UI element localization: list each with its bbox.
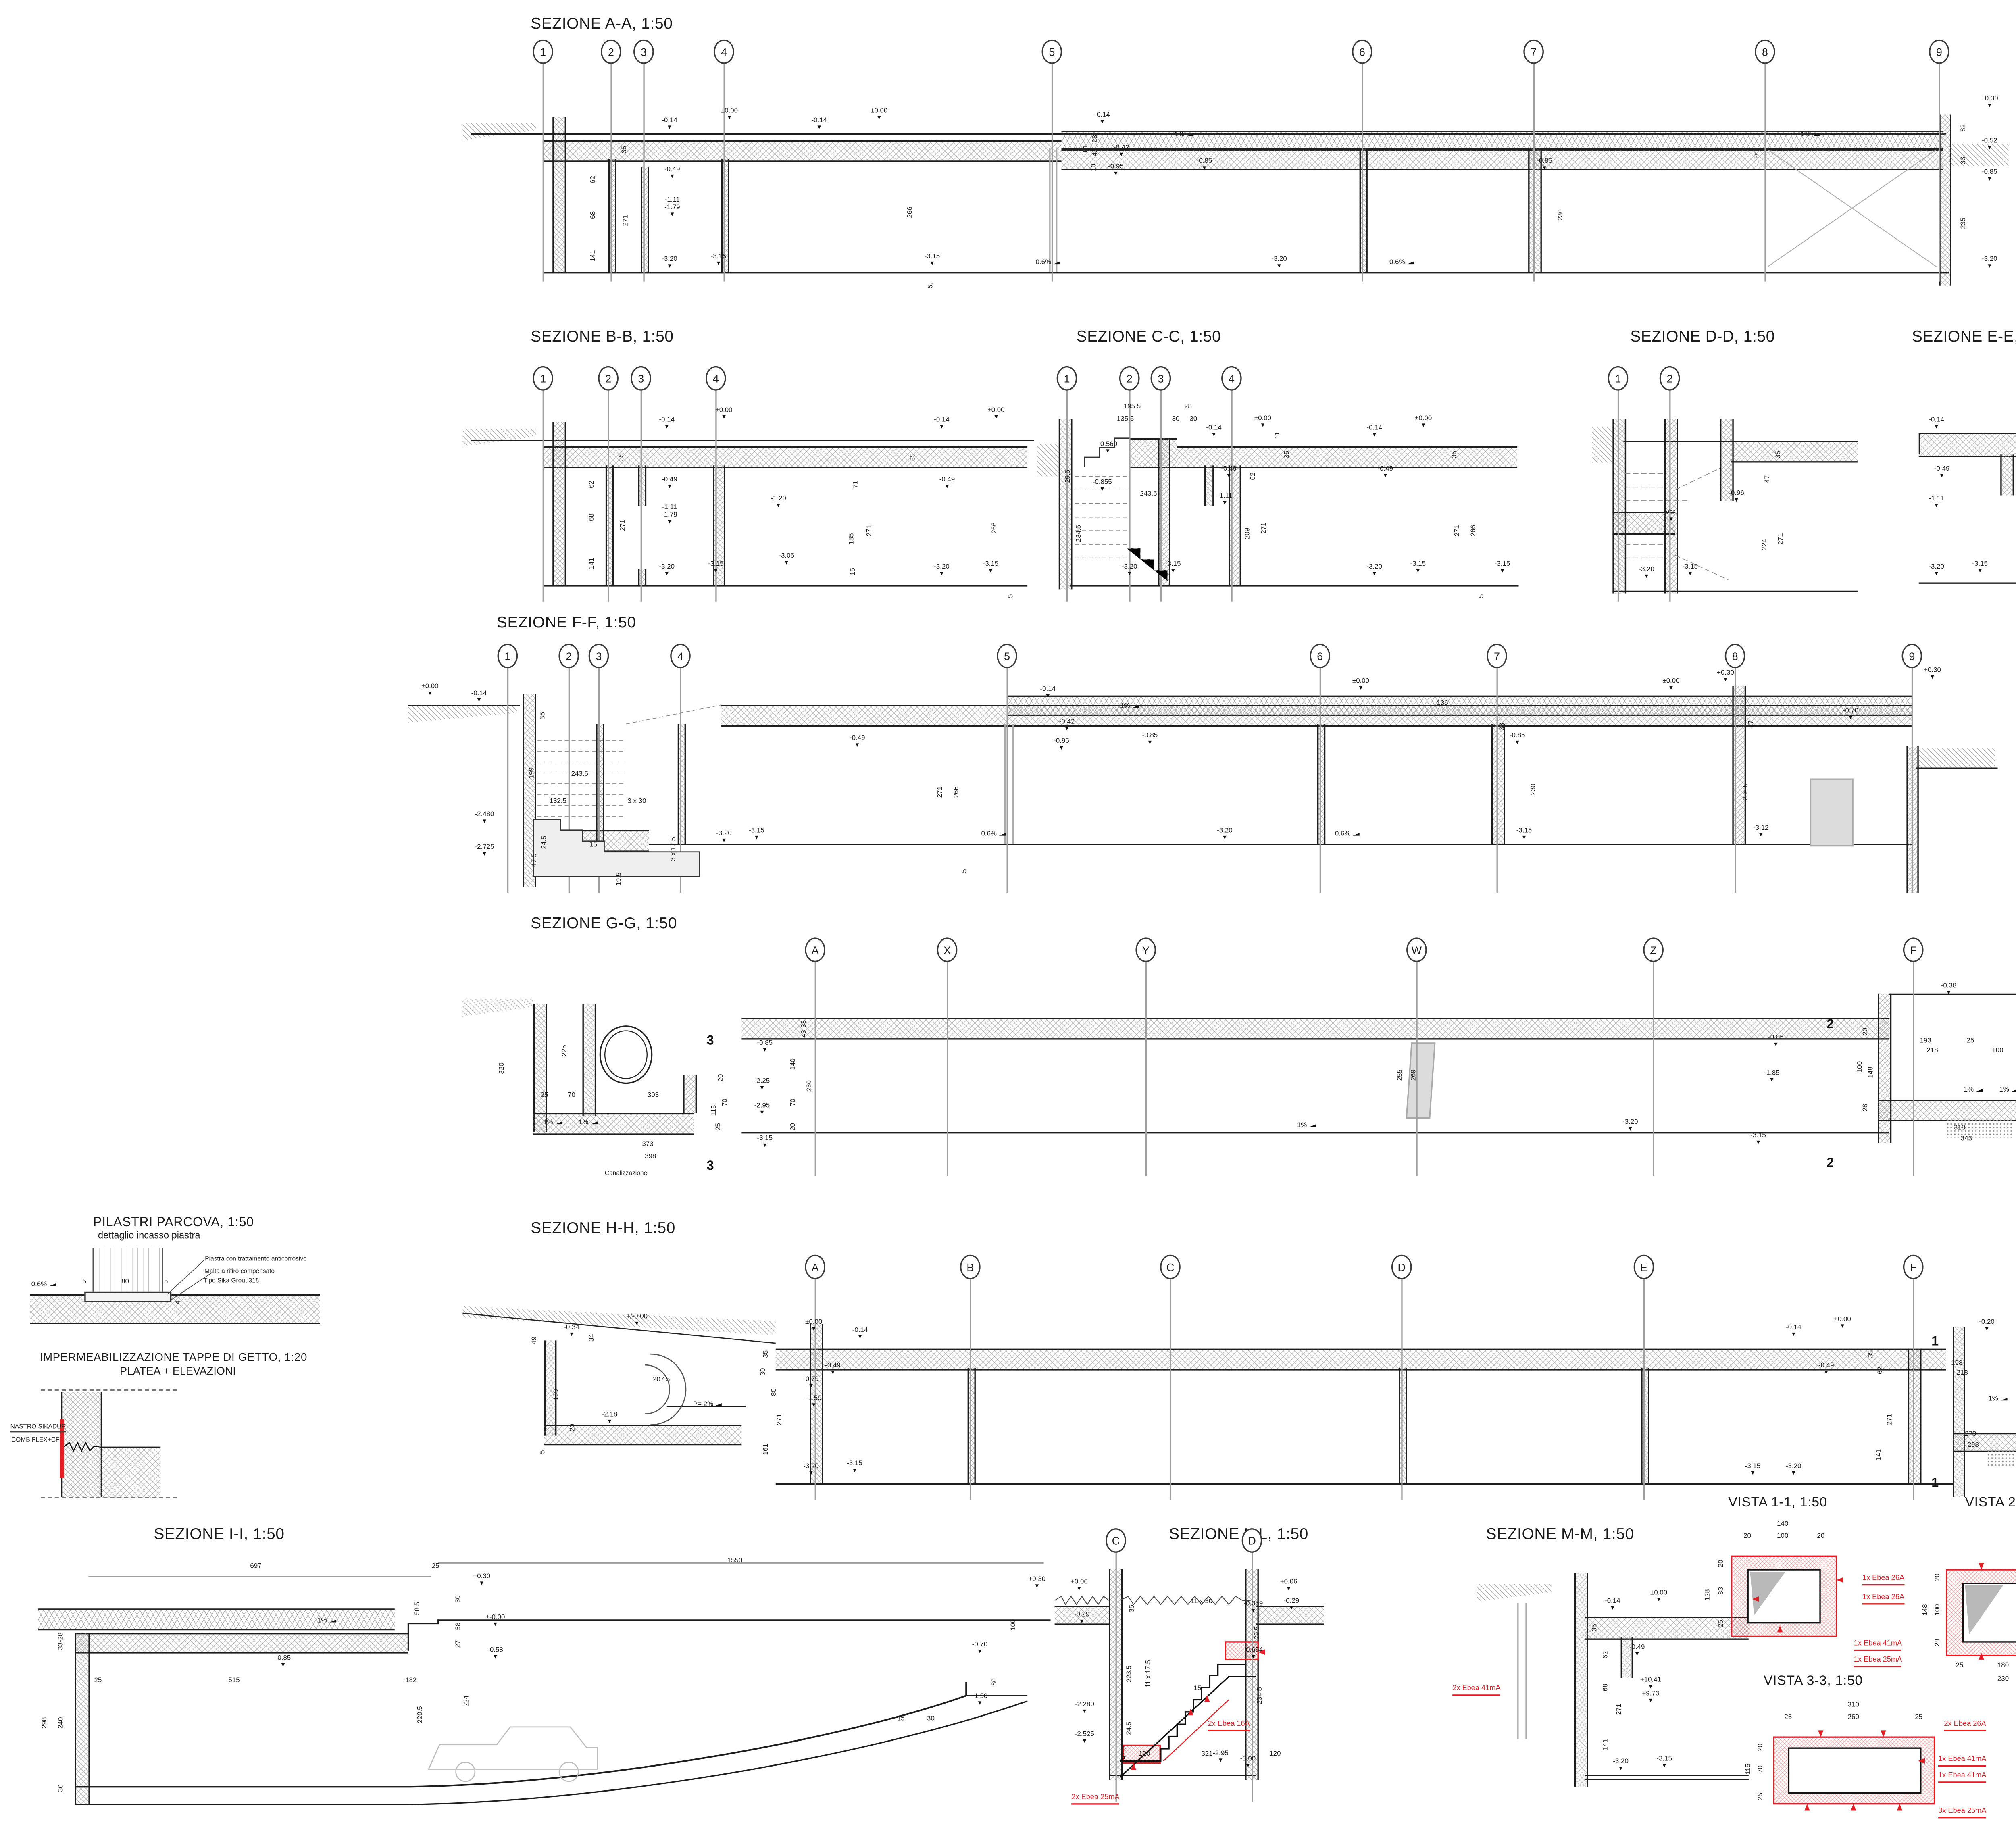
grid-bubble-B: B (960, 1255, 981, 1279)
annotation: -3.15 (1745, 1464, 1760, 1478)
annotation: 2x Ebea 25mA (1071, 1794, 1119, 1804)
grid-bubble-A: A (805, 937, 825, 962)
annotation: 136 (1437, 701, 1448, 709)
annotation: 5 (83, 1279, 86, 1287)
annotation: 35 (1592, 1624, 1600, 1631)
annotation: -3.05 (779, 554, 794, 568)
annotation: 28 (1863, 1104, 1871, 1112)
annotation: 19.5 (616, 873, 624, 886)
stairs-outline (408, 615, 2016, 912)
annotation: 100 (1858, 1061, 1865, 1073)
annotation: 148 (1923, 1604, 1931, 1616)
annotation: 1x Ebea 25mA (1854, 1656, 1902, 1667)
red-arrow-icon (1881, 1730, 1886, 1737)
annotation: 271 (777, 1414, 785, 1425)
annotation: 25 (1758, 1793, 1766, 1800)
annotation: ±0.00 (421, 684, 438, 698)
annotation: 115 (712, 1105, 720, 1116)
grid-bubble-1: 1 (533, 40, 553, 64)
annotation: -0.85 (1197, 159, 1212, 173)
pipe-circle (463, 912, 2016, 1191)
annotation: 62 (1603, 1651, 1611, 1659)
annotation: 35 (1130, 1605, 1137, 1612)
grid-bubble-Z: Z (1643, 937, 1664, 962)
annotation: ±0.00 (987, 408, 1004, 422)
annotation: 180 (1997, 1663, 2009, 1671)
annotation: -3.20 (716, 831, 731, 845)
annotation: 35 (1452, 451, 1460, 458)
red-arrow-icon (1188, 1708, 1193, 1715)
annotation: 30 (1172, 417, 1180, 424)
annotation: NASTRO SIKADUR (10, 1423, 66, 1432)
annotation: -0.49 (664, 167, 680, 181)
annotation: 47.5 (532, 854, 540, 867)
section-linework (27, 1521, 1055, 1823)
annotation: 35 (619, 454, 627, 461)
annotation: +0.30 (473, 1574, 490, 1588)
annotation: 71 (854, 481, 861, 488)
annotation: -3.15 (847, 1461, 862, 1475)
section-c-c: SEZIONE C-C, 1:50 1234 195.528 (1048, 337, 1524, 610)
grid-bubble-7: 7 (1523, 40, 1544, 64)
annotation: 3 (707, 1160, 714, 1175)
annotation: -3.00 (1240, 1756, 1256, 1771)
annotation: 343 (1961, 1137, 1972, 1144)
annotation: -0.85 (1510, 733, 1525, 747)
grid-line (608, 389, 609, 602)
annotation: 2x Ebea 26A (1944, 1720, 1986, 1731)
annotation: 198 (1951, 1361, 1962, 1369)
annotation: -0.49 (939, 477, 955, 492)
grid-bubble-8: 8 (1755, 40, 1775, 64)
annotation: 27 (456, 1640, 464, 1648)
annotation: -2.95 (754, 1103, 770, 1117)
annotation: 230 (1997, 1677, 2009, 1684)
annotation: 49 (532, 1337, 540, 1344)
grid-bubble-E: E (1634, 1255, 1654, 1279)
grid-bubble-D: D (1391, 1255, 1412, 1279)
annotation: -3.15 (983, 562, 998, 576)
annotation: 1x Ebea 26A (1862, 1594, 1904, 1604)
annotation: 35 (1285, 451, 1292, 458)
annotation: -3.20 (662, 257, 677, 271)
annotation: 24.5 (542, 836, 550, 849)
grid-bubble-5: 5 (997, 644, 1017, 668)
annotation: 1x Ebea 41mA (1938, 1756, 1986, 1766)
annotation: 25 (716, 1123, 724, 1131)
annotation: -0.359 (1243, 1602, 1263, 1616)
annotation: -3.15 (925, 254, 940, 268)
annotation: ±0.00 (1254, 416, 1271, 430)
annotation: -0.14 (1929, 417, 1944, 431)
annotation: -3.15 (1750, 1133, 1766, 1148)
annotation: -3.15 (749, 829, 764, 843)
annotation: 260 (1848, 1715, 1859, 1723)
annotation: 321 (1202, 1752, 1213, 1759)
annotation: 62 (589, 481, 597, 488)
annotation: 195.5 (1124, 404, 1141, 412)
grid-bubble-6: 6 (1310, 644, 1330, 668)
annotation: -3.20 (1217, 829, 1232, 843)
annotation: -3.20 (1639, 567, 1654, 581)
annotation: ±0.00 (715, 408, 732, 422)
annotation: -1.59 (806, 1396, 821, 1410)
annotation: 35 (1868, 1350, 1876, 1358)
annotation: 135.5 (1117, 417, 1134, 424)
annotation: 47 (1765, 475, 1773, 483)
grid-bubble-9: 9 (1929, 40, 1949, 64)
annotation: +0.06 (1070, 1580, 1088, 1594)
grid-bubble-4: 4 (1221, 366, 1242, 391)
annotation: 1 (1931, 1477, 1939, 1492)
annotation: +0.30 (1924, 668, 1941, 682)
annotation: 298 (42, 1717, 50, 1729)
annotation: -0.49 (1934, 467, 1949, 481)
annotation: 5 (164, 1279, 168, 1287)
annotation: 25 (1956, 1663, 1964, 1671)
annotation: 62 (1878, 1367, 1886, 1374)
annotation: 1% (1988, 1396, 2007, 1404)
annotation: -0.14 (1605, 1599, 1620, 1613)
annotation: 148 (1868, 1067, 1876, 1078)
annotation: -2.25 (754, 1079, 770, 1093)
annotation: -0.38 (1941, 983, 1956, 998)
annotation: -0.95 (1054, 739, 1069, 753)
annotation: -0.96 (1729, 491, 1744, 505)
annotation: 3 (707, 1035, 714, 1050)
annotation: 26 (1754, 151, 1762, 159)
annotation: 27 (1749, 720, 1756, 728)
annotation: -3.20 (1613, 1759, 1628, 1773)
annotation: 100 (1011, 1619, 1019, 1631)
annotation: 10 (1091, 164, 1099, 171)
annotation: -0.14 (852, 1328, 868, 1342)
annotation: 30 (1189, 417, 1197, 424)
annotation: 5 (962, 869, 970, 873)
annotation: 1x Ebea 41mA (1854, 1640, 1902, 1650)
red-arrow-icon (1897, 1804, 1903, 1811)
grid-bubble-W: W (1406, 937, 1427, 962)
annotation: 11 x 17.5 (1146, 1660, 1154, 1687)
annotation: -0.49 (1629, 1645, 1645, 1659)
annotation: 58 (456, 1623, 464, 1630)
annotation: 303 (648, 1093, 659, 1101)
annotation: ±0.00 (871, 108, 887, 123)
red-arrow-icon (1979, 1653, 1984, 1660)
annotation: 20 (1817, 1534, 1824, 1542)
annotation: 1% (1297, 1123, 1316, 1131)
annotation: 225 (562, 1045, 570, 1056)
annotation: 35 (1776, 451, 1784, 458)
annotation: 25 (94, 1678, 102, 1686)
annotation: 80 (772, 1388, 779, 1396)
annotation: 266 (1471, 525, 1479, 536)
annotation: 20 (1743, 1534, 1751, 1542)
red-arrow-icon (1979, 1563, 1984, 1570)
annotation: -3.15 (1165, 562, 1181, 576)
annotation: -1.50 (972, 1694, 987, 1708)
red-arrow-icon (1851, 1804, 1856, 1811)
annotation: 68 (1603, 1684, 1611, 1692)
annotation: 20 (571, 1424, 578, 1431)
annotation: 68 (591, 211, 598, 219)
annotation: 1550 (727, 1558, 743, 1566)
section-d-d: SEZIONE D-D, 1:50 12 3547-0.96Var.224271… (1606, 337, 1871, 610)
annotation: 15 (589, 843, 597, 850)
annotation: 70 (1758, 1765, 1766, 1773)
annotation: 235 (1961, 217, 1969, 229)
annotation: 20 (1935, 1573, 1943, 1581)
car-silhouette (429, 1727, 598, 1781)
annotation: +0.30 (1717, 671, 1734, 685)
section-a-a: SEZIONE A-A, 1:50 123456789 -0.14±0.00 (463, 14, 2016, 310)
annotation: 20 (791, 1123, 798, 1131)
section-linework (408, 615, 2016, 912)
grid-bubble-1: 1 (1057, 366, 1077, 391)
annotation: -3.15 (1495, 562, 1510, 576)
annotation: 11 (1275, 432, 1283, 439)
annotation: 271 (1888, 1414, 1895, 1425)
annotation: -0.14 (812, 118, 827, 132)
annotation: ±0.00 (805, 1320, 822, 1334)
annotation: -0.855 (1093, 480, 1112, 494)
annotation: 141 (591, 250, 598, 261)
red-arrow-icon (1131, 1763, 1137, 1770)
red-arrow-icon (1258, 1650, 1265, 1655)
annotation: 271 (1617, 1704, 1624, 1715)
annotation: -1.79 (662, 513, 677, 527)
annotation: -0.85 (1142, 733, 1158, 747)
annotation: 62 (591, 176, 598, 183)
grid-bubble-7: 7 (1487, 644, 1507, 668)
annotation: 243.5 (1140, 492, 1157, 499)
annotation: -3.20 (934, 565, 949, 579)
annotation: -0.49 (1818, 1363, 1834, 1377)
annotation: +9.73 (1642, 1691, 1660, 1705)
annotation: -0.14 (1095, 112, 1110, 127)
annotation: -0.49 (825, 1363, 840, 1377)
leader-lines (14, 1215, 333, 1352)
section-linework (463, 14, 2016, 310)
annotation: 141 (1877, 1449, 1885, 1460)
annotation: -3.20 (1786, 1464, 1801, 1478)
annotation: 161 (764, 1444, 771, 1455)
annotation: 209 (1245, 528, 1253, 539)
annotation: 58.5 (415, 1602, 423, 1615)
annotation: 43-33 (802, 1020, 809, 1037)
grid-bubble-2: 2 (598, 366, 619, 391)
annotation: 5 (1479, 594, 1487, 598)
annotation: +0.06 (1280, 1580, 1297, 1594)
section-linework (463, 1218, 2016, 1524)
grid-bubble-2: 2 (1660, 366, 1680, 391)
annotation: 140 (1777, 1522, 1788, 1529)
annotation: 25 (1784, 1715, 1792, 1723)
annotation: -3.20 (1122, 565, 1137, 579)
grid-bubble-F: F (1903, 937, 1924, 962)
section-b-b: SEZIONE B-B, 1:50 1234 -0.14±0.003562-0.… (463, 337, 1048, 610)
view-1-1: VISTA 1-1, 1:50 14020100201282083251x Eb… (1701, 1490, 1933, 1670)
annotation: 234.5 (1258, 1687, 1265, 1704)
annotation: 141 (1603, 1739, 1611, 1750)
annotation: 35 (622, 146, 630, 154)
annotation: 35 (764, 1350, 771, 1358)
grid-bubble-3: 3 (1151, 366, 1171, 391)
manhole-arcs (463, 1218, 2016, 1524)
annotation: -0.34 (564, 1325, 579, 1339)
annotation: -1.11 (1929, 496, 1944, 510)
grid-bubble-X: X (937, 937, 958, 962)
annotation: 15 (1194, 1686, 1202, 1694)
stairs-outline (1055, 1521, 1620, 1829)
annotation: 182 (405, 1678, 417, 1686)
annotation: 271 (623, 215, 631, 226)
annotation: +0.30 (1028, 1577, 1045, 1591)
grid-bubble-C: C (1160, 1255, 1181, 1279)
annotation: 218 (1926, 1048, 1938, 1056)
annotation: 29.5 (1066, 470, 1073, 483)
annotation: 1% (1801, 132, 1819, 140)
section-i-i: SEZIONE I-I, 1:50 69725+0.303058.558±-0.… (27, 1521, 1055, 1823)
annotation: Tipo Sika Grout 318 (204, 1277, 259, 1284)
annotation: -2.725 (475, 845, 494, 859)
annotation: ±0.00 (1415, 416, 1432, 430)
annotation: 141 (589, 558, 597, 569)
annotation: 271 (938, 786, 946, 798)
grid-bubble-F: F (1903, 1255, 1924, 1279)
annotation: 234.5 (1077, 525, 1084, 542)
annotation: 43 (1093, 149, 1101, 156)
annotation: 83 (1719, 1587, 1727, 1595)
detail-pilastri-parcova: PILASTRI PARCOVA, 1:50 dettaglio incasso… (14, 1215, 333, 1352)
annotation: 224 (1762, 539, 1770, 550)
grid-bubble-C: C (1106, 1528, 1126, 1553)
annotation: 266 (992, 522, 1000, 533)
annotation: 70 (568, 1093, 575, 1101)
annotation: 4 (176, 1300, 183, 1304)
annotation: 5 (1008, 594, 1016, 598)
annotation: +0.30 (1981, 96, 1998, 110)
annotation: -0.20 (1979, 1320, 1994, 1334)
annotation: 82 (1961, 124, 1969, 132)
annotation: 132.5 (550, 799, 566, 807)
annotation: -0.14 (659, 417, 675, 431)
grid-bubble-3: 3 (633, 40, 654, 64)
annotation: 80 (121, 1279, 129, 1287)
annotation: -1.11 (1217, 494, 1232, 508)
annotation: 169 (554, 1389, 562, 1400)
annotation: 207.5 (653, 1377, 670, 1385)
annotation: 243.5 (571, 772, 588, 779)
annotation: -0.14 (662, 118, 677, 132)
detail-impermeabilizzazione: IMPERMEABILIZZAZIONE TAPPE DI GETTO, 1:2… (14, 1351, 333, 1528)
grid-bubble-4: 4 (714, 40, 734, 64)
annotation: ±0.00 (1650, 1591, 1667, 1605)
annotation: 271 (1455, 525, 1462, 536)
annotation: 220.5 (418, 1706, 426, 1723)
annotation: 271 (1779, 533, 1787, 544)
annotation: -0.58 (487, 1648, 503, 1662)
annotation: 230 (1531, 783, 1539, 795)
joint-zigzag (14, 1351, 333, 1528)
annotation: 2 (1826, 1158, 1834, 1173)
annotation: COMBIFLEX+CF (11, 1436, 59, 1444)
annotation: -0.14 (1040, 687, 1056, 701)
annotation: 398 (645, 1154, 656, 1162)
annotation: 68 (589, 513, 597, 521)
annotation: -0.70 (1843, 709, 1858, 723)
annotation: 1% (1175, 132, 1193, 140)
grid-bubble-D: D (1242, 1528, 1262, 1553)
annotation: -3.20 (1271, 257, 1287, 271)
annotation: ±0.00 (721, 108, 738, 123)
annotation: 255 (1398, 1069, 1406, 1081)
annotation: -3.15 (1972, 562, 1987, 576)
annotation: 100 (1935, 1604, 1943, 1616)
annotation: 269 (1411, 1069, 1419, 1081)
annotation: 310 (1848, 1703, 1859, 1710)
annotation: 266 (954, 786, 962, 798)
annotation: 25 (1967, 1039, 1974, 1046)
annotation: -2.525 (1075, 1732, 1094, 1746)
annotation: -3.20 (1367, 565, 1382, 579)
annotation: -3.20 (1982, 257, 1997, 271)
annotation: Var. (1665, 510, 1677, 524)
annotation: 1x Ebea 41mA (1938, 1772, 1986, 1783)
annotation: -2.280 (1075, 1702, 1094, 1716)
annotation: 373 (642, 1142, 653, 1150)
grid-bubble-8: 8 (1725, 644, 1745, 668)
annotation: ±0.00 (1662, 679, 1679, 693)
annotation: -0.14 (471, 691, 487, 705)
annotation: 185 (849, 533, 857, 544)
annotation: 81 (1083, 144, 1091, 152)
annotation: 28 (1935, 1639, 1943, 1646)
annotation: Canalizzazione (605, 1169, 647, 1177)
grid-bubble-1: 1 (1608, 366, 1629, 391)
annotation: -3.15 (1410, 562, 1426, 576)
red-arrow-icon (1804, 1804, 1810, 1811)
grid-bubble-9: 9 (1902, 644, 1922, 668)
red-arrow-icon (1752, 1596, 1759, 1602)
annotation: -0.85 (1982, 170, 1997, 184)
grid-bubble-6: 6 (1352, 40, 1372, 64)
annotation: 2 (1826, 1019, 1834, 1033)
annotation: -0.52 (1982, 138, 1997, 152)
annotation: 47.5 (1121, 1746, 1129, 1760)
annotation: 697 (250, 1564, 261, 1571)
annotation: 33-28 (59, 1633, 67, 1650)
annotation: -0.85 (275, 1656, 291, 1670)
red-arrow-icon (1837, 1577, 1843, 1583)
grid-bubble-1: 1 (498, 644, 518, 668)
annotation: 20 (1758, 1744, 1766, 1751)
annotation: -0.70 (972, 1642, 987, 1656)
annotation: 5 (540, 1450, 548, 1454)
grid-bubble-2: 2 (558, 644, 579, 668)
annotation: -0.49 (850, 736, 865, 750)
annotation: 1 (1931, 1336, 1939, 1351)
annotation: 100 (1992, 1048, 2003, 1056)
grid-bubble-4: 4 (670, 644, 691, 668)
annotation: -3.15 (711, 254, 726, 268)
annotations: -0.1435-0.4962-1.11209271-3.20-3.15 (1898, 337, 2016, 610)
section-e-e: SEZIONE E-E, 1:50 -0.1435-0.4962-1.11209… (1898, 337, 2016, 610)
annotation: 20 (719, 1074, 726, 1082)
annotation: 1% (317, 1618, 336, 1626)
annotation: 28 (1184, 404, 1192, 412)
red-arrow-icon (1204, 1695, 1210, 1702)
